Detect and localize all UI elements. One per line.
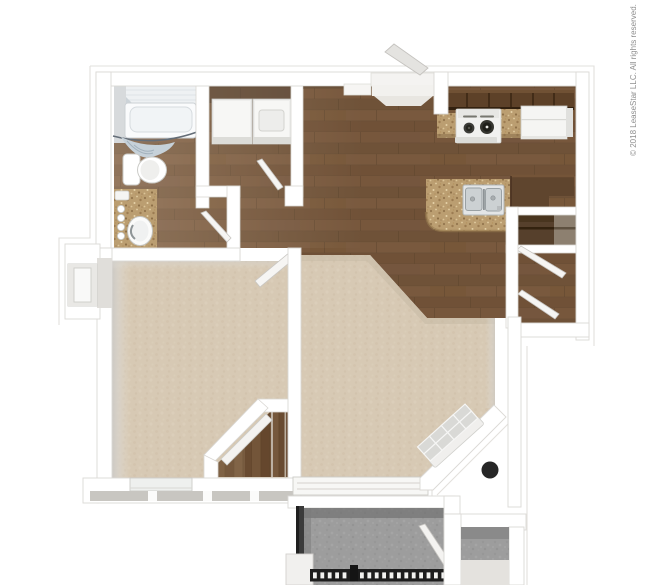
svg-text:© 2018 LeaseStar LLC. All righ: © 2018 LeaseStar LLC. All rights reserve… <box>629 4 638 156</box>
